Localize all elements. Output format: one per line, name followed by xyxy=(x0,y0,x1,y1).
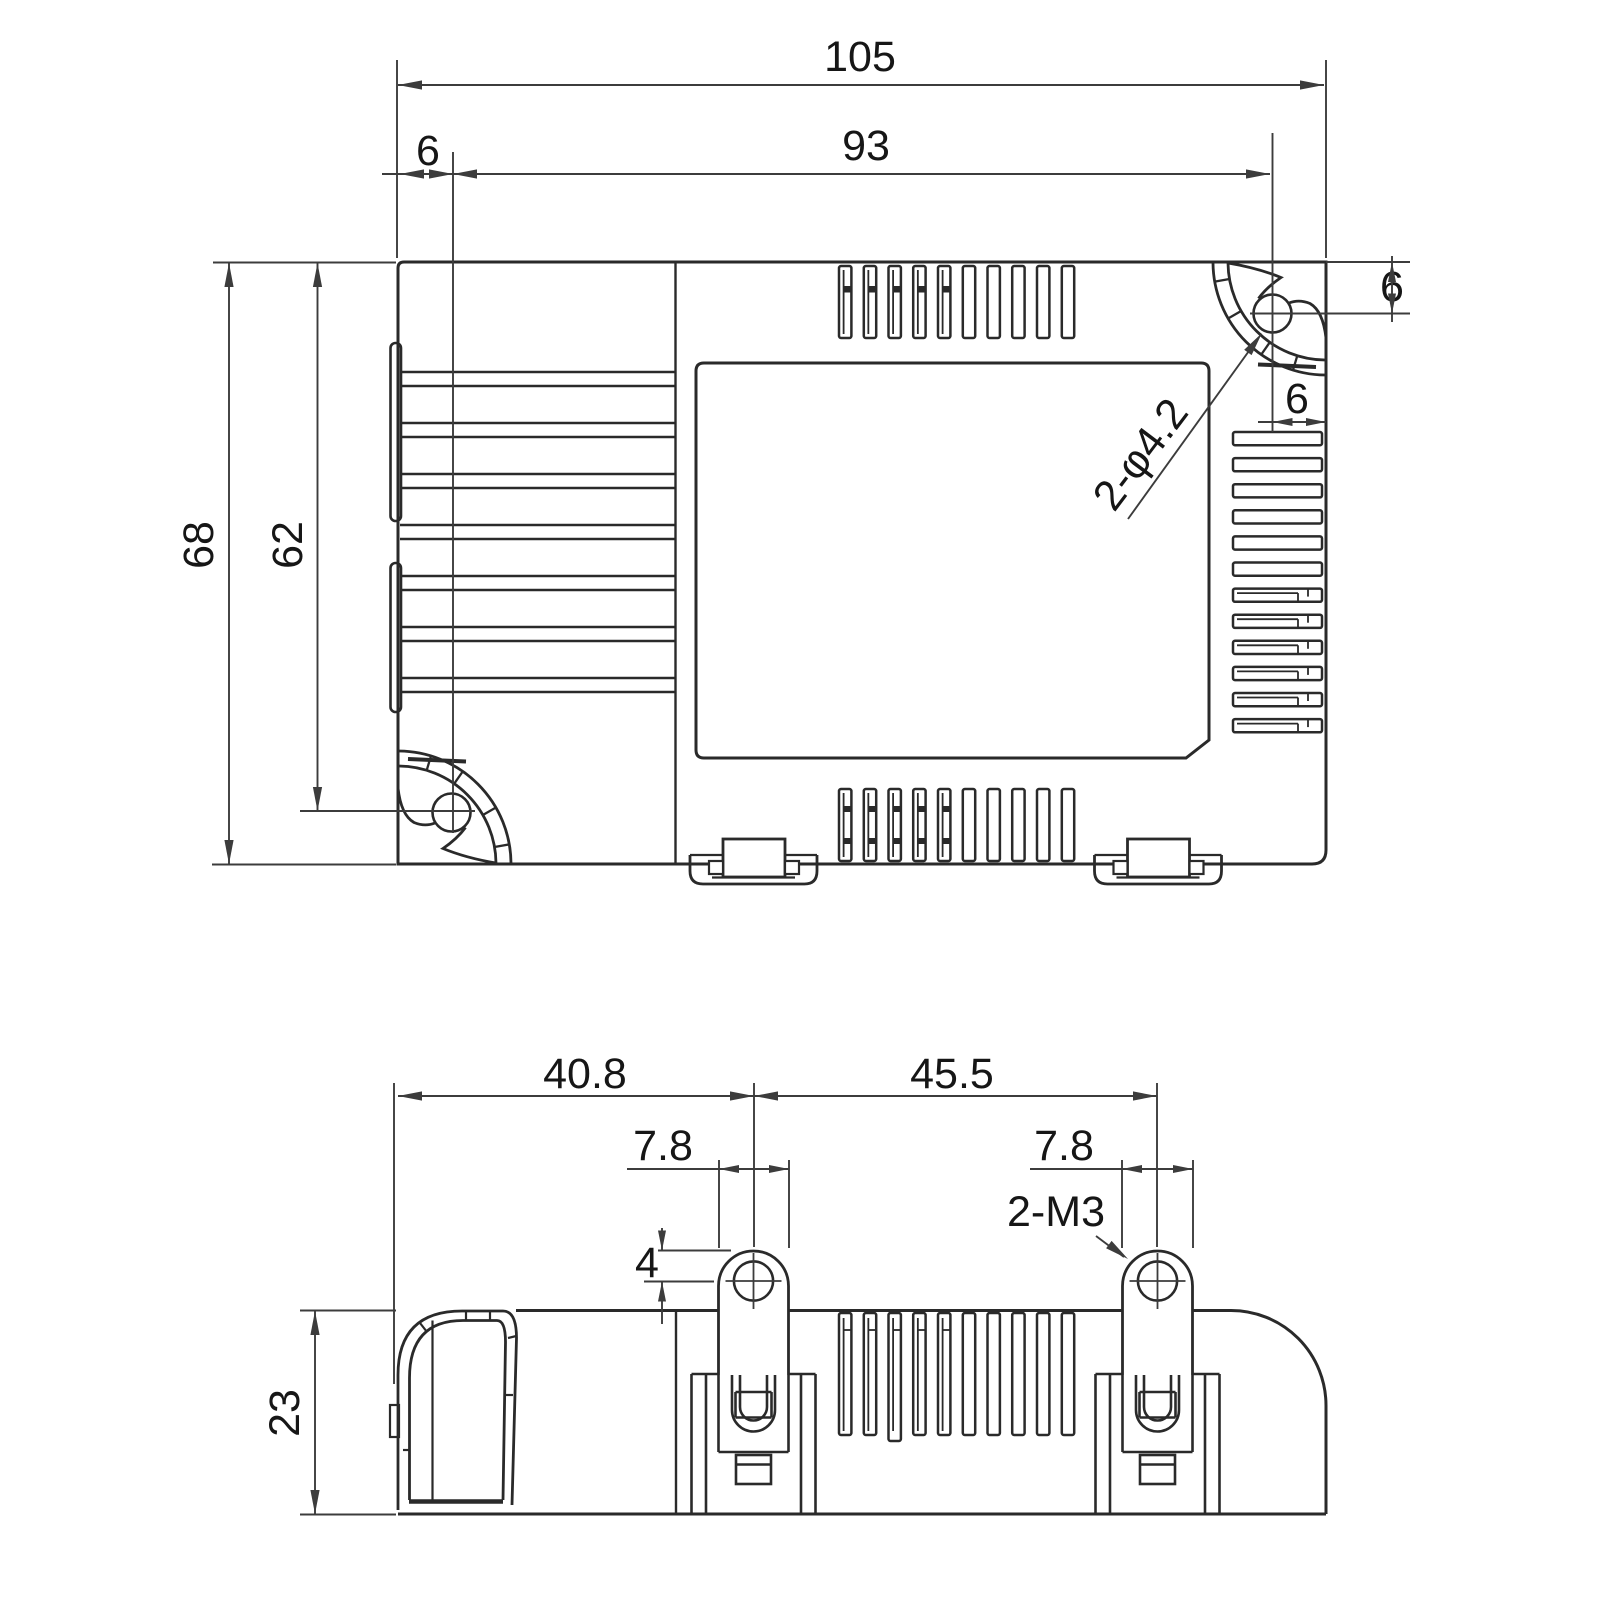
svg-text:6: 6 xyxy=(1285,375,1309,423)
svg-text:105: 105 xyxy=(824,33,896,81)
svg-text:40.8: 40.8 xyxy=(543,1050,627,1098)
svg-text:7.8: 7.8 xyxy=(633,1122,693,1170)
svg-text:2-M3: 2-M3 xyxy=(1007,1188,1105,1236)
svg-text:68: 68 xyxy=(175,521,223,569)
svg-text:93: 93 xyxy=(842,122,890,170)
svg-text:7.8: 7.8 xyxy=(1034,1122,1094,1170)
svg-text:4: 4 xyxy=(635,1239,659,1287)
svg-text:45.5: 45.5 xyxy=(910,1050,994,1098)
svg-text:62: 62 xyxy=(264,521,312,569)
svg-text:23: 23 xyxy=(261,1389,309,1437)
svg-text:6: 6 xyxy=(416,127,440,175)
